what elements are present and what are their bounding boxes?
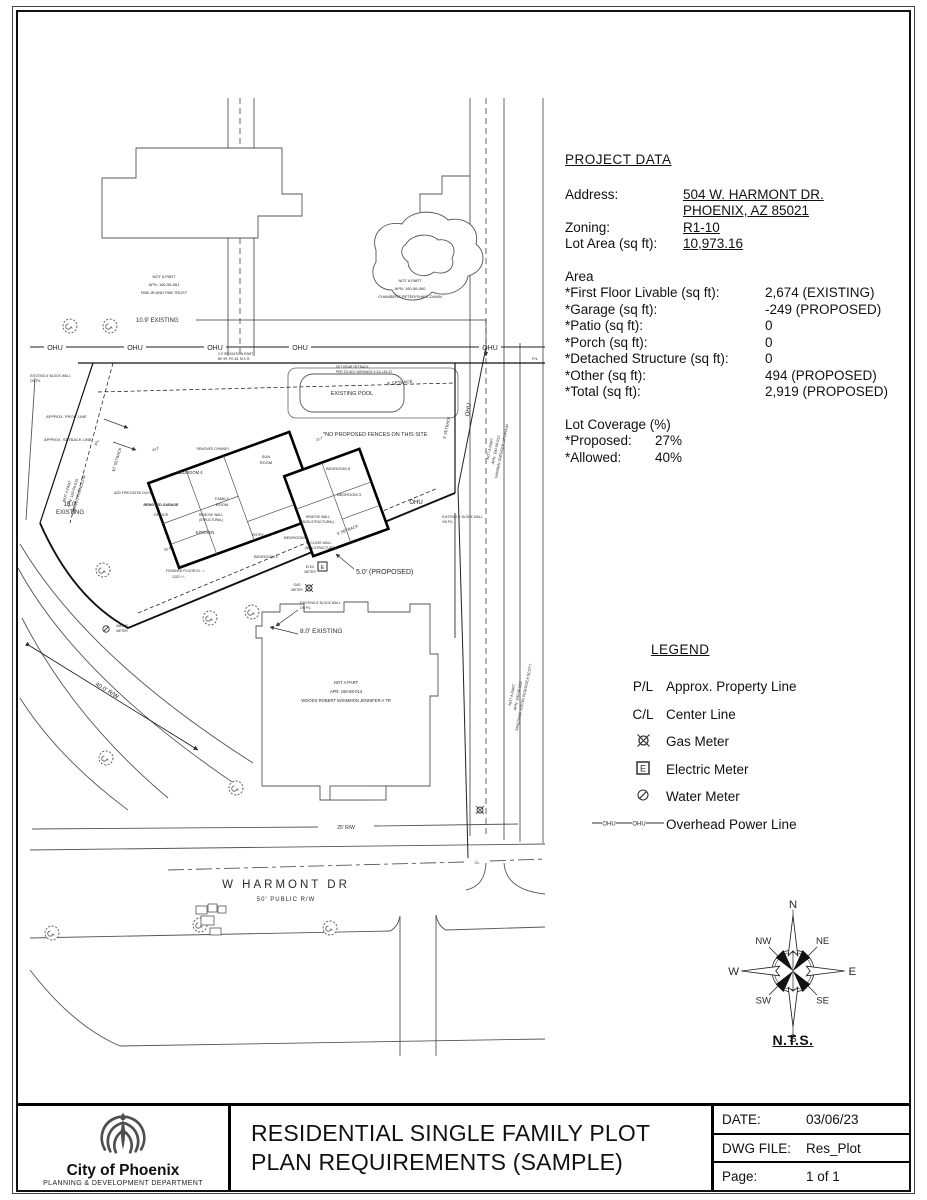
plan-label: (NON-STRUCTURAL): [305, 546, 338, 550]
legend-item: OHU OHU Overhead Power Line: [620, 811, 910, 839]
date-label: DATE:: [714, 1112, 806, 1127]
legend-item: C/L Center Line: [620, 701, 910, 729]
plan-label: REMOVED GARAGE: [144, 503, 180, 507]
lot-area-value: 10,973.16: [683, 236, 743, 253]
org-name: City of Phoenix: [67, 1162, 180, 1180]
address-line1: 504 W. HARMONT DR.: [683, 187, 824, 202]
legend-label: Overhead Power Line: [666, 817, 797, 832]
plan-label: APPROX. PROP. LINE: [46, 414, 87, 419]
plan-label: (STRUCTURAL): [199, 518, 223, 522]
plan-label: OHU: [207, 345, 223, 352]
compass-ne: NE: [816, 936, 829, 947]
plan-label: EXISTING: [56, 510, 84, 516]
plan-label: 10.9' EXISTING: [136, 318, 179, 324]
zoning-row: Zoning: R1-10: [565, 220, 915, 237]
plan-label: ON P/L: [300, 606, 311, 610]
plan-label: OHU: [482, 345, 498, 352]
ohu-text: OHU: [632, 821, 645, 827]
plan-label: OHU: [47, 345, 63, 352]
plan-label: OHU: [292, 345, 308, 352]
plan-label: ADD FIRE-RATED DOOR: [114, 491, 153, 495]
title-block-info: DATE: 03/06/23 DWG FILE: Res_Plot Page: …: [714, 1106, 909, 1190]
area-value: 2,919 (PROPOSED): [765, 384, 888, 401]
electric-meter-letter: E: [321, 565, 325, 571]
nts-label: N.T.S.: [726, 1032, 860, 1048]
overhead-power-line-icon: OHU OHU: [592, 817, 664, 829]
plan-label: WOODS ROBERT M/SIMMON JENNIFER A TR: [301, 698, 391, 703]
plan-label: 50' PUBLIC R/W: [257, 897, 316, 903]
page-value: 1 of 1: [806, 1169, 840, 1184]
legend-item: Gas Meter: [620, 728, 910, 756]
plan-label: REMOVE WALL: [306, 515, 330, 519]
compass-n: N: [789, 899, 797, 911]
date-row: DATE: 03/06/23: [714, 1106, 909, 1135]
plan-label: 40.0' R/W: [94, 682, 120, 701]
plan-label: OHU: [409, 500, 422, 506]
room-label: BEDROOM 2: [284, 535, 309, 540]
area-label: *Porch (sq ft):: [565, 335, 765, 352]
project-data-title: PROJECT DATA: [565, 152, 915, 169]
legend-label: Center Line: [666, 707, 736, 722]
compass-sw: SW: [756, 996, 771, 1007]
compass-e: E: [849, 966, 857, 978]
coverage-value: 27%: [655, 433, 682, 450]
area-title: Area: [565, 269, 915, 286]
plan-label: 8.0' EXISTING: [300, 628, 342, 635]
plan-label: 5.0' (PROPOSED): [356, 569, 413, 576]
page-row: Page: 1 of 1: [714, 1163, 909, 1190]
legend-item: E Electric Meter: [620, 756, 910, 784]
plan-label: CHAMBERS PETER/SHARI-DAWN: [378, 294, 442, 299]
plan-label: OHU: [127, 345, 143, 352]
area-label: *Other (sq ft):: [565, 368, 765, 385]
room-label: ROOM: [216, 502, 228, 507]
coverage-row: *Proposed:27%: [565, 433, 915, 450]
area-row: *Garage (sq ft):-249 (PROPOSED): [565, 302, 915, 319]
area-row: *Other (sq ft):494 (PROPOSED): [565, 368, 915, 385]
plan-label: WATER: [116, 624, 128, 628]
area-value: 0: [765, 318, 773, 335]
room-label: BEDROOM 5: [326, 466, 351, 471]
plan-label: P/L: [532, 356, 539, 361]
lot-area-label: Lot Area (sq ft):: [565, 236, 683, 253]
plan-label: FINISHED FLOOR EL. =: [166, 569, 205, 573]
plan-label: *NO PROPOSED FENCES ON THIS SITE: [323, 432, 428, 438]
zoning-label: Zoning:: [565, 220, 683, 237]
page-label: Page:: [714, 1169, 806, 1184]
dwg-file-row: DWG FILE: Res_Plot: [714, 1135, 909, 1164]
legend-title: LEGEND: [651, 642, 910, 657]
legend-label: Approx. Property Line: [666, 679, 797, 694]
area-value: 0: [765, 335, 773, 352]
plan-label: NOT A PART: [152, 274, 176, 279]
plan-label: SET REAR SETBACK: [336, 365, 370, 369]
plan-label: ELEC: [306, 565, 315, 569]
area-label: *First Floor Livable (sq ft):: [565, 285, 765, 302]
site-plan-drawing: E NOT A PART APN: 160-56-061 FBB JR AND …: [18, 98, 548, 1060]
plan-label: APN: 160-56-061: [149, 282, 181, 287]
legend-label: Water Meter: [666, 789, 740, 804]
address-label: Address:: [565, 187, 683, 220]
area-row: *Detached Structure (sq ft):0: [565, 351, 915, 368]
compass-se: SE: [816, 996, 829, 1007]
center-line-symbol: C/L: [620, 707, 666, 722]
area-row: *Porch (sq ft):0: [565, 335, 915, 352]
plan-label: NOT A PART: [334, 680, 359, 685]
title-block-logo-cell: City of Phoenix PLANNING & DEVELOPMENT D…: [18, 1106, 231, 1190]
plan-label: P/L: [93, 438, 100, 446]
plan-label: 10' SETBACK: [111, 447, 123, 473]
area-value: 0: [765, 351, 773, 368]
gas-meter-icon: [636, 733, 651, 748]
room-label: OFFICE: [154, 512, 169, 517]
plan-label: GAS: [294, 583, 302, 587]
plan-label: METER: [291, 588, 303, 592]
area-label: *Patio (sq ft):: [565, 318, 765, 335]
plan-label: METER: [304, 570, 316, 574]
room-label: BEDROOM 4: [177, 470, 203, 475]
compass-rose: N S E W NE NW SE SW: [726, 896, 860, 1046]
legend-item: Water Meter: [620, 783, 910, 811]
plan-label: APN: 160-56-014: [330, 689, 363, 694]
dept-name: PLANNING & DEVELOPMENT DEPARTMENT: [43, 1180, 203, 1187]
area-row: *Patio (sq ft):0: [565, 318, 915, 335]
plan-label: APN: 160-56-060: [395, 286, 427, 291]
legend-label: Electric Meter: [666, 762, 749, 777]
room-label: BEDROOM 1: [254, 554, 279, 559]
plan-label: CLOSE WALL: [311, 541, 332, 545]
legend-panel: LEGEND P/L Approx. Property Line C/L Cen…: [620, 642, 910, 838]
compass-nw: NW: [755, 936, 771, 947]
plan-label: 3' SETBACK: [442, 416, 452, 440]
plan-label: CL: [474, 860, 480, 865]
plan-label: ON P/L: [442, 520, 453, 524]
area-row: *First Floor Livable (sq ft):2,674 (EXIS…: [565, 285, 915, 302]
zoning-value: R1-10: [683, 220, 720, 237]
plan-label: PER ZO ADJ VARIANCE # ZA-143-22: [336, 370, 392, 374]
electric-meter-letter: E: [640, 763, 646, 773]
plan-label: EXISTING 6' BLOCK WALL: [30, 374, 71, 378]
street-name-label: W HARMONT DR: [222, 879, 350, 891]
area-label: *Detached Structure (sq ft):: [565, 351, 765, 368]
plan-label: EXISTING 6' BLOCK WALL: [300, 601, 341, 605]
room-label: ROOM: [260, 460, 272, 465]
area-value: 2,674 (EXISTING): [765, 285, 875, 302]
water-meter-icon: [636, 788, 650, 802]
room-label: BEDROOM 3: [337, 492, 362, 497]
room-label: SUN: [262, 454, 271, 459]
area-value: -249 (PROPOSED): [765, 302, 881, 319]
area-label: *Garage (sq ft):: [565, 302, 765, 319]
area-value: 494 (PROPOSED): [765, 368, 877, 385]
coverage-row: *Allowed:40%: [565, 450, 915, 467]
plan-label: METER: [116, 629, 128, 633]
address-line2: PHOENIX, AZ 85021: [683, 203, 809, 218]
plan-label: 2.0' IRRIGATION ESMT: [218, 352, 253, 356]
plan-label: ON P/L: [30, 379, 41, 383]
legend-item: P/L Approx. Property Line: [620, 673, 910, 701]
lot-area-row: Lot Area (sq ft): 10,973.16: [565, 236, 915, 253]
electric-meter-icon: E: [636, 761, 650, 775]
area-label: *Total (sq ft):: [565, 384, 765, 401]
sheet-title: RESIDENTIAL SINGLE FAMILY PLOT PLAN REQU…: [231, 1106, 714, 1190]
plan-label: FBB JR AND PAB TRUST: [141, 290, 188, 295]
title-block: City of Phoenix PLANNING & DEVELOPMENT D…: [18, 1103, 909, 1190]
plan-labels: NOT A PART APN: 160-56-061 FBB JR AND PA…: [30, 274, 539, 903]
plan-label: 43.2': [151, 446, 160, 452]
project-data-panel: PROJECT DATA Address: 504 W. HARMONT DR.…: [565, 152, 915, 466]
coverage-label: *Allowed:: [565, 450, 655, 467]
coverage-value: 40%: [655, 450, 682, 467]
ohu-text: OHU: [602, 821, 615, 827]
sheet-title-line1: RESIDENTIAL SINGLE FAMILY PLOT: [251, 1119, 711, 1148]
address-row: Address: 504 W. HARMONT DR. PHOENIX, AZ …: [565, 187, 915, 220]
sheet-title-line2: PLAN REQUIREMENTS (SAMPLE): [251, 1148, 711, 1177]
legend-label: Gas Meter: [666, 734, 729, 749]
property-line-symbol: P/L: [620, 679, 666, 694]
area-row: *Total (sq ft):2,919 (PROPOSED): [565, 384, 915, 401]
plan-label: 25' R/W: [337, 825, 355, 831]
plan-label: BK 99, PG 46, M.C.R.: [218, 357, 250, 361]
plan-label: APPROX. SETBACK LINE: [44, 437, 92, 442]
date-value: 03/06/23: [806, 1112, 859, 1127]
city-of-phoenix-logo-icon: [94, 1109, 152, 1161]
room-label: ENTRY: [252, 533, 264, 537]
plan-label: 1202 +/-: [172, 575, 186, 579]
room-label: FAMILY: [215, 496, 229, 501]
plan-label: EXISTING 6' BLOCK WALL: [442, 515, 483, 519]
plan-label: NOT A PART: [398, 278, 422, 283]
plan-label: 10.0': [64, 502, 77, 508]
coverage-label: *Proposed:: [565, 433, 655, 450]
plot-plan-sheet: E NOT A PART APN: 160-56-061 FBB JR AND …: [0, 0, 927, 1200]
plan-label: REMOVE WALL: [199, 513, 223, 517]
dwg-file-value: Res_Plot: [806, 1141, 861, 1156]
dwg-file-label: DWG FILE:: [714, 1141, 806, 1156]
coverage-title: Lot Coverage (%): [565, 417, 915, 434]
room-label: KITCHEN: [196, 530, 214, 535]
plan-label: REMOVED CHIMNEY: [197, 447, 231, 451]
plan-label: OHU: [465, 403, 473, 417]
plan-label: EXISTING POOL: [331, 391, 373, 397]
compass-w: W: [728, 966, 739, 978]
plan-label: (NON-STRUCTURAL): [302, 520, 335, 524]
